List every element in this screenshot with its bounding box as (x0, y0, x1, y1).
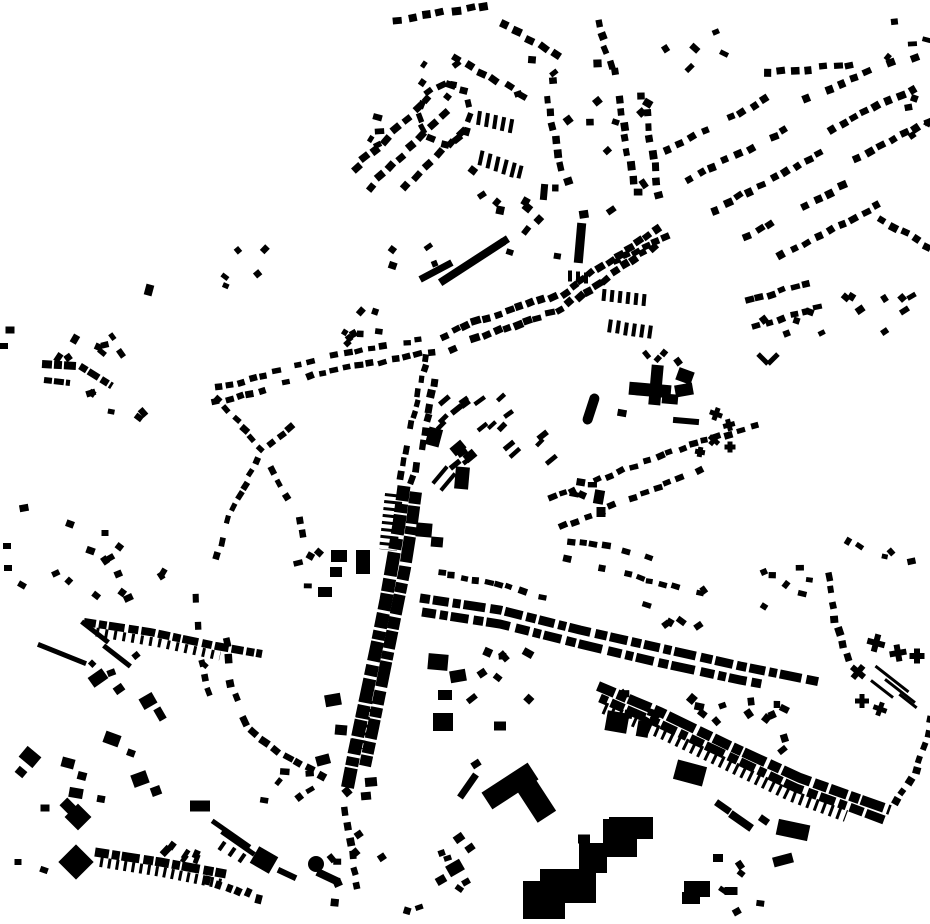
building-footprint (623, 148, 630, 157)
building-footprint (910, 94, 919, 103)
building-footprint (351, 162, 363, 174)
building-footprint (689, 439, 699, 447)
building-footprint (586, 119, 594, 126)
building-footprint (549, 77, 557, 84)
building-footprint (224, 515, 231, 524)
building-footprint (880, 327, 889, 336)
building-footprint (720, 155, 729, 164)
building-footprint (550, 49, 562, 60)
building-footprint (769, 572, 776, 578)
building-footprint (418, 78, 427, 87)
building-footprint (430, 378, 438, 387)
building-footprint (195, 622, 202, 630)
building-footprint (860, 694, 865, 708)
building-footprint (377, 359, 387, 367)
building-footprint (426, 389, 436, 399)
building-footprint (253, 269, 262, 278)
building-footprint (640, 489, 650, 497)
building-footprint (736, 107, 747, 117)
building-footprint (422, 354, 429, 362)
building-footprint (464, 60, 475, 71)
building-footprint (436, 80, 448, 90)
building-footprint (407, 474, 416, 485)
building-footprint (636, 574, 646, 582)
building-footprint (350, 867, 358, 876)
building-footprint (920, 741, 928, 751)
building-footprint (256, 444, 265, 453)
building-footprint (493, 325, 504, 335)
building-footprint (525, 298, 535, 308)
building-footprint (415, 522, 432, 537)
building-footprint (751, 322, 761, 330)
building-footprint (562, 554, 572, 562)
building-footprint (395, 153, 406, 164)
building-footprint (465, 99, 473, 108)
building-footprint (642, 601, 652, 609)
building-footprint (624, 709, 633, 718)
building-footprint (37, 642, 87, 666)
building-footprint (51, 569, 60, 577)
building-footprint (375, 128, 385, 134)
building-footprint (4, 565, 12, 571)
building-footprint (222, 282, 230, 289)
building-footprint (737, 869, 746, 878)
building-footprint (544, 96, 551, 104)
building-footprint (540, 184, 548, 201)
building-footprint (593, 489, 605, 505)
building-footprint (342, 363, 351, 370)
building-footprint (270, 745, 281, 756)
building-footprint (644, 554, 653, 562)
building-footprint (852, 154, 862, 164)
building-footprint (830, 615, 838, 623)
building-footprint (420, 60, 428, 68)
building-footprint (801, 93, 811, 103)
building-footprint (374, 170, 386, 182)
building-footprint (673, 417, 699, 425)
building-footprint (777, 286, 786, 294)
building-footprint (204, 687, 212, 697)
building-footprint (115, 542, 125, 552)
building-footprint (412, 462, 420, 473)
building-footprint (260, 797, 269, 804)
building-footprint (235, 490, 245, 501)
building-footprint (443, 92, 452, 101)
building-footprint (645, 135, 653, 143)
building-footprint (790, 244, 799, 253)
building-footprint (524, 35, 535, 45)
building-footprint (493, 156, 500, 172)
building-footprint (884, 678, 916, 704)
building-footprint (697, 447, 704, 458)
terrace-row (598, 686, 890, 810)
building-footprint (631, 323, 637, 336)
building-footprint (922, 36, 930, 43)
building-footprint (64, 576, 73, 585)
building-footprint (455, 884, 465, 893)
building-footprint (654, 191, 664, 200)
building-footprint (410, 410, 418, 419)
building-footprint (861, 208, 872, 218)
building-footprint (697, 167, 707, 177)
building-footprint (829, 601, 837, 609)
building-footprint (826, 225, 836, 235)
building-footprint (415, 904, 424, 911)
building-footprint (493, 673, 503, 683)
building-footprint (102, 731, 121, 748)
building-footprint (915, 755, 923, 764)
building-footprint (402, 445, 409, 455)
building-footprint (764, 219, 774, 229)
building-footprint (643, 457, 652, 465)
building-footprint (859, 107, 870, 117)
building-footprint (341, 806, 349, 816)
building-footprint (735, 860, 745, 871)
building-footprint (658, 581, 667, 589)
building-footprint (450, 81, 458, 88)
building-footprint (518, 586, 529, 595)
building-footprint (88, 668, 109, 688)
building-footprint (495, 205, 505, 215)
building-footprint (427, 118, 439, 130)
building-footprint (627, 161, 636, 171)
building-footprint (756, 900, 765, 907)
building-footprint (107, 409, 115, 415)
building-footprint (435, 874, 448, 886)
building-footprint (414, 336, 422, 342)
building-footprint (472, 577, 480, 584)
building-footprint (427, 653, 448, 671)
building-footprint (275, 479, 283, 488)
building-footprint (477, 150, 484, 166)
building-footprint (904, 104, 913, 112)
building-footprint (797, 590, 807, 597)
building-footprint (252, 456, 261, 465)
building-footprint (576, 478, 586, 486)
building-footprint (467, 165, 478, 176)
building-footprint (416, 112, 424, 123)
building-footprint (896, 90, 907, 100)
building-footprint (506, 248, 514, 256)
building-footprint (558, 521, 569, 530)
building-footprint (925, 730, 930, 738)
building-footprint (221, 404, 231, 414)
building-footprint (91, 591, 101, 601)
building-footprint (769, 132, 780, 142)
building-footprint (790, 311, 799, 318)
building-footprint (577, 490, 587, 500)
building-footprint (473, 395, 486, 406)
building-footprint (673, 759, 707, 786)
building-footprint (315, 753, 331, 766)
building-footprint (354, 829, 364, 839)
building-footprint (280, 768, 290, 775)
building-footprint (780, 733, 789, 743)
building-footprint (579, 539, 587, 546)
building-footprint (547, 492, 558, 501)
building-footprint (341, 329, 349, 337)
building-footprint (19, 746, 42, 768)
building-footprint (424, 242, 434, 251)
building-footprint (662, 479, 671, 487)
terrace-row (422, 612, 762, 684)
building-footprint (732, 907, 742, 917)
building-footprint (496, 393, 506, 403)
building-footprint (498, 650, 510, 662)
building-footprint (655, 451, 666, 461)
building-footprint (547, 292, 559, 303)
building-footprint (861, 67, 872, 76)
building-footprint (870, 101, 881, 112)
building-footprint (744, 187, 754, 197)
building-footprint (733, 149, 744, 159)
building-footprint (914, 649, 920, 664)
building-footprint (652, 162, 659, 171)
building-footprint (366, 182, 376, 193)
building-footprint (713, 854, 723, 862)
building-footprint (65, 519, 75, 528)
building-footprint (554, 149, 563, 158)
building-footprint (451, 325, 461, 334)
building-footprint (592, 96, 603, 107)
building-footprint (237, 853, 246, 863)
building-footprint (790, 283, 800, 291)
building-footprint (478, 2, 488, 11)
building-footprint (897, 787, 906, 796)
building-footprint (113, 683, 126, 695)
building-footprint (536, 295, 546, 305)
building-footprint (906, 292, 916, 301)
building-footprint (883, 96, 893, 106)
building-footprint (438, 690, 452, 700)
building-footprint (755, 224, 766, 234)
building-footprint (333, 859, 341, 865)
building-footprint (615, 320, 621, 333)
building-footprint (451, 7, 461, 16)
building-footprint (229, 502, 237, 511)
building-footprint (116, 348, 126, 359)
building-footprint (801, 280, 810, 288)
building-footprint (837, 180, 848, 191)
building-footprint (225, 381, 233, 388)
building-footprint (314, 547, 324, 557)
building-footprint (671, 582, 681, 590)
building-footprint (246, 468, 255, 477)
building-footprint (470, 759, 481, 770)
building-footprint (294, 792, 304, 802)
building-footprint (494, 311, 503, 320)
building-footprint (555, 305, 565, 314)
building-footprint (559, 489, 568, 496)
building-footprint (532, 314, 542, 322)
building-footprint (346, 837, 355, 847)
building-footprint (85, 546, 95, 556)
building-footprint (477, 190, 487, 199)
building-footprint (764, 69, 771, 77)
building-footprint (834, 626, 844, 637)
building-footprint (277, 867, 298, 881)
building-footprint (392, 355, 400, 362)
building-footprint (548, 122, 557, 132)
building-footprint (588, 482, 597, 487)
building-footprint (547, 108, 555, 116)
building-footprint (514, 301, 524, 311)
building-footprint (674, 473, 684, 482)
building-footprint (201, 674, 209, 682)
building-footprint (661, 44, 670, 53)
building-footprint (299, 529, 307, 538)
building-footprint (234, 246, 243, 255)
building-footprint (759, 94, 770, 105)
building-footprint (824, 85, 834, 95)
building-footprint (316, 771, 327, 782)
building-footprint (400, 181, 411, 192)
building-footprint (710, 206, 719, 216)
building-footprint (601, 289, 606, 301)
building-footprint (274, 777, 283, 786)
building-footprint (540, 869, 596, 903)
building-footprint (356, 550, 370, 574)
building-footprint (190, 801, 210, 812)
building-footprint (247, 727, 259, 739)
building-footprint (388, 261, 398, 270)
building-footprint (389, 122, 401, 134)
building-footprint (318, 587, 332, 597)
building-footprint (745, 295, 755, 303)
building-footprint (459, 86, 468, 94)
building-footprint (224, 654, 232, 664)
building-footprint (240, 481, 250, 491)
building-footprint (505, 305, 516, 314)
building-footprint (837, 79, 847, 89)
building-footprint (609, 290, 614, 302)
building-footprint (606, 205, 617, 215)
building-footprint (827, 585, 834, 593)
building-footprint (503, 440, 516, 452)
building-footprint (282, 492, 291, 501)
building-footprint (447, 572, 455, 579)
building-footprint (848, 214, 859, 224)
building-footprint (131, 651, 140, 660)
building-footprint (682, 892, 700, 904)
building-footprint (756, 352, 769, 365)
building-footprint (609, 817, 653, 839)
building-footprint (232, 415, 241, 424)
building-footprint (477, 422, 489, 433)
building-footprint (605, 472, 615, 481)
building-footprint (804, 66, 812, 74)
building-footprint (839, 118, 849, 128)
building-footprint (772, 853, 794, 868)
building-footprint (365, 777, 378, 787)
building-footprint (414, 399, 421, 407)
building-footprint (449, 669, 467, 684)
building-footprint (305, 770, 314, 776)
building-footprint (509, 162, 517, 178)
building-footprint (421, 427, 429, 436)
building-footprint (365, 359, 374, 367)
building-footprint (638, 178, 648, 189)
building-footprint (501, 159, 509, 175)
building-footprint (392, 17, 402, 25)
building-footprint (538, 594, 547, 601)
building-footprint (897, 293, 907, 303)
building-footprint (864, 146, 875, 157)
building-footprint (545, 454, 558, 466)
building-footprint (792, 162, 802, 172)
building-footprint (258, 736, 271, 748)
building-footprint (335, 724, 348, 735)
building-footprint (700, 437, 708, 444)
building-footprint (400, 457, 407, 467)
building-footprint (482, 647, 493, 658)
building-footprint (438, 569, 446, 576)
building-footprint (476, 111, 482, 125)
building-footprint (331, 550, 347, 562)
terrace-row (365, 492, 416, 766)
building-footprint (598, 31, 608, 41)
building-footprint (434, 147, 446, 159)
building-footprint (621, 548, 631, 556)
building-footprint (552, 184, 559, 191)
building-footprint (653, 484, 663, 492)
building-footprint (403, 906, 412, 915)
building-footprint (689, 43, 700, 54)
building-footprint (838, 220, 847, 229)
building-footprint (484, 579, 494, 586)
building-footprint (102, 644, 132, 669)
building-footprint (574, 223, 586, 264)
building-footprint (528, 56, 536, 64)
building-footprint (237, 379, 246, 387)
building-footprint (922, 242, 930, 252)
building-footprint (844, 62, 854, 70)
building-footprint (603, 146, 613, 155)
building-footprint (780, 166, 791, 177)
building-footprint (402, 353, 411, 361)
building-footprint (728, 442, 733, 453)
building-footprint (663, 145, 672, 155)
building-footprint (17, 580, 27, 589)
building-footprint (440, 332, 450, 341)
building-footprint (126, 748, 136, 757)
building-footprint (801, 239, 811, 249)
building-footprint (650, 237, 660, 246)
building-footprint (284, 422, 295, 433)
building-footprint (470, 316, 482, 326)
building-footprint (431, 536, 444, 547)
building-footprint (425, 403, 433, 413)
building-footprint (578, 835, 590, 844)
building-footprint (305, 371, 315, 380)
building-footprint (384, 160, 396, 172)
building-footprint (625, 292, 630, 304)
building-footprint (70, 333, 81, 344)
building-footprint (813, 194, 823, 204)
building-footprint (563, 114, 574, 125)
building-footprint (354, 347, 363, 354)
building-footprint (464, 843, 475, 854)
building-footprint (594, 262, 606, 273)
building-footprint (319, 370, 327, 377)
building-footprint (6, 327, 15, 334)
building-footprint (806, 577, 813, 583)
figure-ground-map (0, 0, 930, 924)
building-footprint (504, 583, 512, 590)
building-footprint (774, 701, 780, 708)
building-footprint (766, 352, 779, 365)
building-footprint (660, 232, 670, 241)
